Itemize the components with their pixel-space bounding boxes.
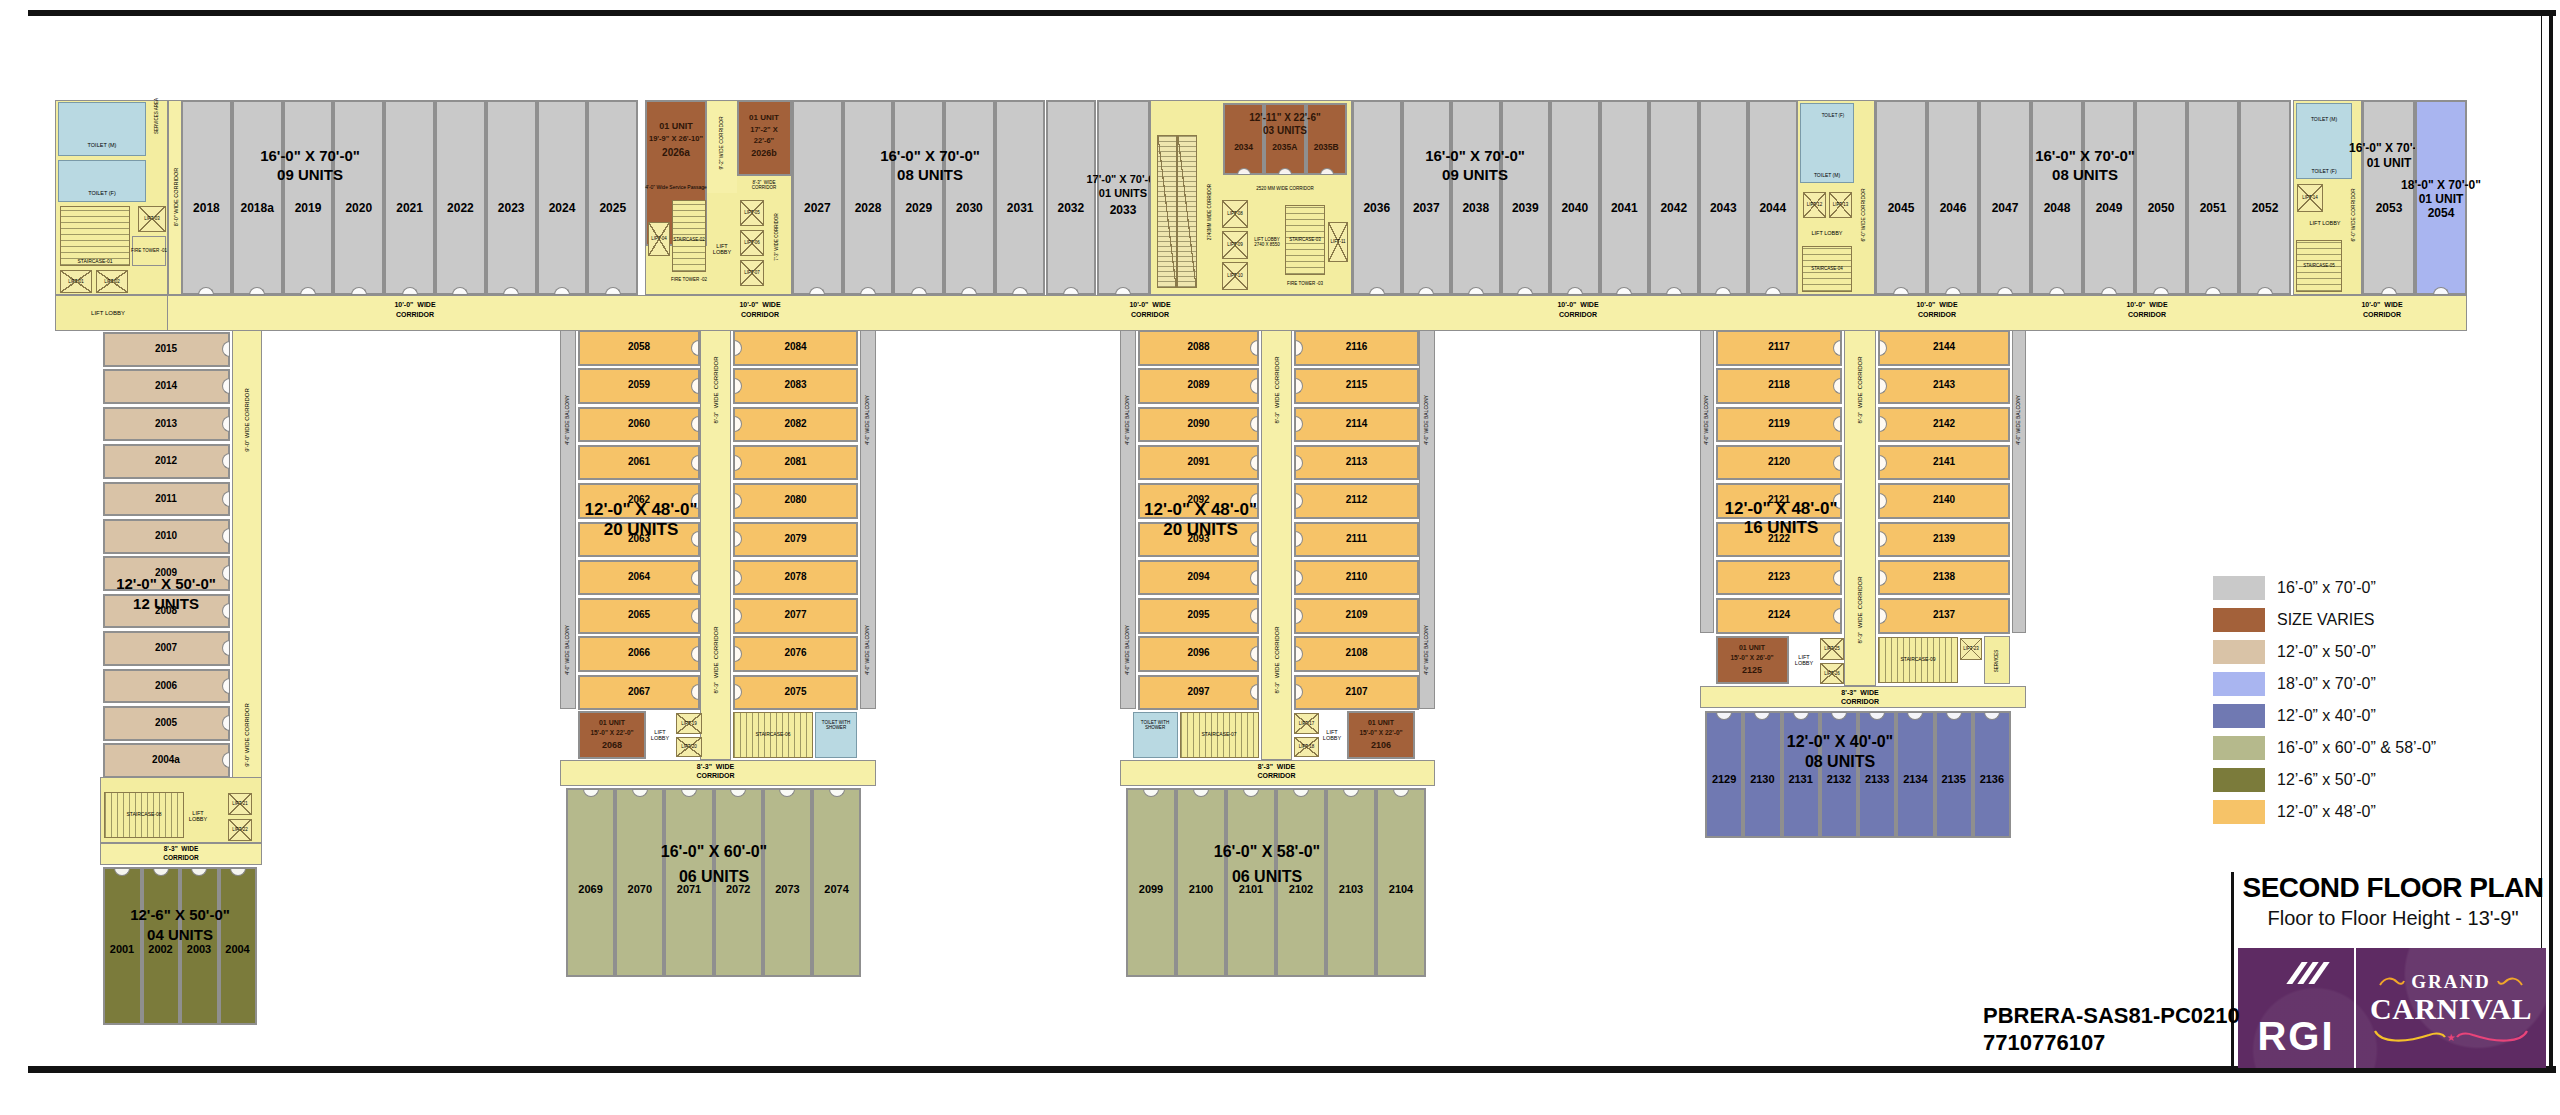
- unit-2139-num: 2139: [1933, 533, 1955, 544]
- lift-04-label: LIFT-04: [651, 237, 667, 242]
- door-2034: [1237, 168, 1251, 175]
- door-2038: [1468, 287, 1484, 295]
- unit-2088-num: 2088: [1187, 342, 1209, 353]
- unit-2039: [1501, 100, 1551, 295]
- wing-a-corridor-h-l1: 8'-3" WIDE: [697, 763, 734, 771]
- unit-2099-num: 2099: [1139, 884, 1163, 896]
- svg-text:★: ★: [2447, 1032, 2456, 1043]
- unit-2106-l2: 15'-0" X 22'-0": [1359, 729, 1402, 736]
- lift-02-label: LIFT-02: [104, 279, 120, 284]
- unit-2031: [995, 100, 1046, 295]
- unit-2117-num: 2117: [1768, 342, 1790, 353]
- unit-2021-num: 2021: [396, 202, 423, 215]
- unit-2113-num: 2113: [1346, 456, 1368, 467]
- unit-2135-num: 2135: [1941, 774, 1965, 786]
- unit-2068-l2: 15'-0" X 22'-0": [590, 729, 633, 736]
- unit-2074-num: 2074: [824, 884, 848, 896]
- wing-a-toilet: [815, 712, 857, 758]
- rgi-logo-text: RGI: [2257, 1016, 2334, 1056]
- legend-label-1: SIZE VARIES: [2277, 611, 2375, 629]
- wing-b-toilet: [1133, 712, 1178, 758]
- legend-swatch-5: [2213, 736, 2265, 760]
- unit-2116-num: 2116: [1346, 342, 1368, 353]
- corridor-main-label-4-1: 10'-0" WIDE: [1916, 301, 1957, 309]
- wing-c-bottom-label2: 08 UNITS: [1805, 753, 1875, 770]
- unit-2123-num: 2123: [1768, 571, 1790, 582]
- unit-2026a-l1: 01 UNIT: [659, 122, 693, 132]
- door-2061: [691, 455, 699, 471]
- unit-2018a-num: 2018a: [241, 202, 274, 215]
- lift-10-label: LIFT-10: [1227, 274, 1243, 279]
- unit-2005-num: 2005: [155, 718, 177, 729]
- legend-row-4: 12’-0” x 40’-0”: [2213, 700, 2436, 732]
- unit-2027-num: 2027: [804, 202, 831, 215]
- wing-a-corridor-label-2: 8'-3" WIDE CORRIDOR: [712, 627, 718, 694]
- unit-2018-num: 2018: [193, 202, 220, 215]
- wing-c-balcony-right: [2012, 330, 2026, 633]
- corridor-main-label-4-2: CORRIDOR: [1918, 311, 1956, 319]
- door-2091: [1250, 455, 1258, 471]
- unit-2026a-l2: 19'-9" X 26'-10": [649, 135, 703, 143]
- wing-b-label1: 12'-0" X 48'-0": [1144, 501, 1257, 519]
- lift-lobby-center-label: LIFT LOBBY 2740 X 8550: [1254, 238, 1280, 248]
- staircase-04-label: STAIRCASE-04: [1811, 267, 1843, 272]
- lift-lobby-b-label: LIFT LOBBY: [2309, 221, 2340, 227]
- rera-line2: 7710776107: [1983, 1029, 2240, 1056]
- unit-2045-num: 2045: [1888, 202, 1915, 215]
- triplet-label1: 12'-11" X 22'-6": [1249, 113, 1321, 124]
- unit-2054-num: 2054: [2428, 207, 2455, 220]
- unit-2029-num: 2029: [905, 202, 932, 215]
- door-2042: [1666, 287, 1682, 295]
- unit-2066-num: 2066: [628, 648, 650, 659]
- unit-2070-num: 2070: [628, 884, 652, 896]
- unit-2059-num: 2059: [628, 380, 650, 391]
- wing-b-label2: 20 UNITS: [1163, 521, 1238, 539]
- toilet-a-f-label: TOILET (F): [1822, 114, 1845, 119]
- unit-2101-num: 2101: [1239, 884, 1263, 896]
- unit-2030: [944, 100, 995, 295]
- unit-2041-num: 2041: [1611, 202, 1638, 215]
- unit-2138-num: 2138: [1933, 571, 1955, 582]
- unit-2110-num: 2110: [1346, 571, 1368, 582]
- wing-c-balcony-left: [1700, 330, 1714, 633]
- lift-07-label: LIFT-07: [744, 271, 760, 276]
- unit-2003-num: 2003: [187, 944, 211, 956]
- lift-lobby-left-label: LIFT LOBBY: [91, 310, 125, 316]
- staircase-09-label: STAIRCASE-09: [1900, 657, 1935, 662]
- unit-2144-num: 2144: [1933, 342, 1955, 353]
- unit-2033-num: 2033: [1110, 204, 1137, 217]
- unit-2032-num: 2032: [1057, 202, 1084, 215]
- lift-23-label: LIFT-23: [1963, 647, 1979, 652]
- corridor-main-label-1-2: CORRIDOR: [741, 311, 779, 319]
- corridor-main-label-0-1: 10'-0" WIDE: [394, 301, 435, 309]
- g3-label1: 16'-0" X 70'-0": [1425, 148, 1525, 164]
- unit-2028-num: 2028: [855, 202, 882, 215]
- unit-2015-num: 2015: [155, 344, 177, 355]
- wing-b-balcony-left-label: 4'-0" WIDE BALCONY: [1125, 395, 1130, 445]
- legend-swatch-0: [2213, 576, 2265, 600]
- unit-2044-num: 2044: [1759, 202, 1786, 215]
- door-2013: [222, 416, 230, 432]
- unit-2026b-l3: 22'-6": [754, 137, 774, 145]
- left-wing-corridor-label-1: 9'-0" WIDE CORRIDOR: [244, 388, 250, 452]
- door-2124: [1833, 608, 1841, 624]
- corridor-main-label-0-2: CORRIDOR: [396, 311, 434, 319]
- wing-b-corridor-h-l1: 8'-3" WIDE: [1258, 763, 1295, 771]
- unit-2043-num: 2043: [1710, 202, 1737, 215]
- corridor-main-label-5-2: CORRIDOR: [2128, 311, 2166, 319]
- wing-a-toilet-label: TOILET WITH SHOWER: [822, 721, 850, 731]
- door-2058: [691, 340, 699, 356]
- unit-2111-num: 2111: [1346, 533, 1367, 544]
- lift-13-label: LIFT-13: [1833, 203, 1849, 208]
- wing-c-label2: 16 UNITS: [1744, 519, 1819, 537]
- unit-2061-num: 2061: [628, 456, 650, 467]
- unit-2025-num: 2025: [599, 202, 626, 215]
- door-2095: [1250, 608, 1258, 624]
- door-2025: [605, 287, 621, 295]
- corridor-v-92-label: 9'-2" WIDE CORRIDOR: [719, 116, 724, 169]
- wing-a-corridor-label-1: 8'-3" WIDE CORRIDOR: [712, 357, 718, 424]
- door-2006: [222, 678, 230, 694]
- unit-2049: [2083, 100, 2135, 295]
- lift-14-label: LIFT-14: [2302, 196, 2318, 201]
- unit-2027: [792, 100, 843, 295]
- unit-2034-num: 2034: [1234, 143, 1253, 152]
- unit-2026b-num: 2026b: [751, 149, 777, 159]
- lift-26-label: LIFT-26: [1824, 671, 1840, 676]
- grand-carnival-logo: GRAND CARNIVAL ★: [2356, 948, 2546, 1068]
- top-rule: [28, 10, 2556, 16]
- door-2008: [222, 603, 230, 619]
- flourish-right-icon: [2497, 976, 2523, 988]
- unit-2035B-num: 2035B: [1314, 143, 1339, 152]
- legend-swatch-7: [2213, 800, 2265, 824]
- unit-2072-num: 2072: [726, 884, 750, 896]
- staircase-01: [60, 206, 130, 266]
- unit-2026a-num: 2026a: [662, 148, 690, 159]
- unit-2047-num: 2047: [1992, 202, 2019, 215]
- wing-a-balcony-left-label2: 4'-0" WIDE BALCONY: [565, 625, 570, 675]
- unit-2013-num: 2013: [155, 418, 177, 429]
- g4-label1: 16'-0" X 70'-0": [2035, 148, 2135, 164]
- unit-2102-num: 2102: [1289, 884, 1313, 896]
- unit-2004-num: 2004: [225, 944, 249, 956]
- unit-2118-num: 2118: [1768, 380, 1790, 391]
- legend-row-1: SIZE VARIES: [2213, 604, 2436, 636]
- unit-2068-num: 2068: [602, 741, 622, 751]
- left-wing-corridor-h-l2: CORRIDOR: [163, 854, 198, 861]
- grand-row: GRAND: [2379, 971, 2523, 993]
- unit-2120-num: 2120: [1768, 456, 1790, 467]
- unit-2106-num: 2106: [1371, 741, 1391, 751]
- unit-2112-num: 2112: [1346, 495, 1368, 506]
- legend-swatch-6: [2213, 768, 2265, 792]
- unit-2132-num: 2132: [1827, 774, 1851, 786]
- unit-2028: [843, 100, 894, 295]
- corridor-v-73-label: 7'-3" WIDE CORRIDOR: [775, 213, 780, 261]
- unit-2080-num: 2080: [784, 495, 806, 506]
- unit-2125-num: 2125: [1742, 666, 1762, 676]
- flourish-bottom-icon: ★: [2371, 1027, 2531, 1045]
- staircase-06-label: STAIRCASE-06: [755, 732, 790, 737]
- lift-05-label: LIFT-05: [744, 211, 760, 216]
- unit-2104-num: 2104: [1389, 884, 1413, 896]
- rera-line1: PBRERA-SAS81-PC0210: [1983, 1002, 2240, 1029]
- legend-row-5: 16’-0” x 60’-0” & 58’-0”: [2213, 732, 2436, 764]
- unit-2012-num: 2012: [155, 456, 177, 467]
- unit-2053-num: 2053: [2376, 202, 2403, 215]
- unit-2042: [1649, 100, 1699, 295]
- unit-2019-num: 2019: [295, 202, 322, 215]
- unit-2053: [2362, 100, 2415, 295]
- wing-b-corridor-label-2: 8'-3" WIDE CORRIDOR: [1273, 627, 1279, 694]
- unit-2097-num: 2097: [1187, 686, 1209, 697]
- door-2123: [1833, 570, 1841, 586]
- fire-tower-01-label: FIRE TOWER -01: [131, 249, 167, 254]
- unit-2076-num: 2076: [784, 648, 806, 659]
- unit-2030-num: 2030: [956, 202, 983, 215]
- left-wing-corridor-label-2: 9'-0" WIDE CORRIDOR: [244, 703, 250, 767]
- unit-2143-num: 2143: [1933, 380, 1955, 391]
- corridor-v-60b-label: 6'-0" WIDE CORRIDOR: [2351, 188, 2356, 241]
- lift-01-label: LIFT-01: [68, 279, 84, 284]
- corridor-2520-label: 2520 MM WIDE CORRIDOR: [1256, 187, 1314, 192]
- unit-2025: [587, 100, 638, 295]
- wing-c-balcony-right-label: 4'-0" WIDE BALCONY: [2016, 395, 2021, 445]
- wing-a-bottom-label2: 06 UNITS: [679, 868, 749, 885]
- legend-row-0: 16’-0” x 70’-0”: [2213, 572, 2436, 604]
- floor-plan-sheet: 16’-0” x 70’-0”SIZE VARIES12’-0” x 50’-0…: [0, 0, 2560, 1115]
- staircase-07-label: STAIRCASE-07: [1201, 732, 1236, 737]
- unit-2065-num: 2065: [628, 610, 650, 621]
- unit-2039-num: 2039: [1512, 202, 1539, 215]
- unit-2073-num: 2073: [775, 884, 799, 896]
- lift-17-label: LIFT-17: [1299, 721, 1315, 726]
- lift-12-label: LIFT-12: [1807, 203, 1823, 208]
- g3-label2: 09 UNITS: [1442, 167, 1508, 183]
- corridor-main-label-2-2: CORRIDOR: [1131, 311, 1169, 319]
- page-subtitle: Floor to Floor Height - 13'-9": [2237, 907, 2549, 930]
- unit-2031-num: 2031: [1007, 202, 1034, 215]
- wing-c-corridor-label-1: 8'-3" WIDE CORRIDOR: [1857, 357, 1863, 424]
- door-2032: [1063, 287, 1079, 295]
- left-wing-lobby-label: LIFT LOBBY: [189, 811, 207, 823]
- unit-2041: [1600, 100, 1650, 295]
- unit-2040-num: 2040: [1561, 202, 1588, 215]
- unit-2068-l1: 01 UNIT: [599, 719, 625, 727]
- unit-2141-num: 2141: [1933, 456, 1955, 467]
- legend-row-3: 18’-0” x 70’-0”: [2213, 668, 2436, 700]
- unit-2083-num: 2083: [784, 380, 806, 391]
- unit-2078-num: 2078: [784, 571, 806, 582]
- unit-2050: [2135, 100, 2187, 295]
- corridor-main-label-5-1: 10'-0" WIDE: [2126, 301, 2167, 309]
- escalator-1: [1157, 135, 1177, 288]
- unit-2134-num: 2134: [1903, 774, 1927, 786]
- wing-a-lobby-label: LIFT LOBBY: [651, 730, 669, 742]
- legend-label-2: 12’-0” x 50’-0”: [2277, 643, 2376, 661]
- unit-2024: [537, 100, 588, 295]
- door-2117: [1833, 340, 1841, 356]
- lift-22-label: LIFT-22: [232, 828, 248, 833]
- fire-tower-03-label: FIRE TOWER -03: [1287, 282, 1323, 287]
- unit-2054-l2: 01 UNIT: [2419, 193, 2464, 206]
- unit-2002-num: 2002: [148, 944, 172, 956]
- unit-2048: [2031, 100, 2083, 295]
- unit-2058-num: 2058: [628, 342, 650, 353]
- corridor-main-label-3-2: CORRIDOR: [1559, 311, 1597, 319]
- toilet-a-m-label: TOILET (M): [1814, 173, 1840, 178]
- service-passage-label: 4'-0" Wide Service Passage: [645, 185, 707, 190]
- corridor-v-left-label: 8'-0" WIDE CORRIDOR: [174, 168, 180, 226]
- page-title: SECOND FLOOR PLAN: [2237, 872, 2549, 904]
- lift-20-label: LIFT-20: [681, 745, 697, 750]
- unit-2045: [1875, 100, 1927, 295]
- toilet-m-left-label: TOILET (M): [88, 143, 117, 149]
- wing-c-corridor-h-l1: 8'-3" WIDE: [1841, 689, 1878, 697]
- unit-2100-num: 2100: [1189, 884, 1213, 896]
- fire-tower-02-label: FIRE TOWER -02: [671, 278, 707, 283]
- legend-label-7: 12’-0” x 48’-0”: [2277, 803, 2376, 821]
- unit-2049-num: 2049: [2096, 202, 2123, 215]
- unit-2018: [181, 100, 232, 295]
- unit-2048-num: 2048: [2044, 202, 2071, 215]
- unit-2060-num: 2060: [628, 418, 650, 429]
- lift-18-label: LIFT-18: [1299, 745, 1315, 750]
- unit-2026b-l1: 01 UNIT: [749, 114, 779, 123]
- wing-b-balcony-right-label2: 4'-0" WIDE BALCONY: [1424, 625, 1429, 675]
- wing-a-label1: 12'-0" X 48'-0": [584, 501, 697, 519]
- door-2040: [1567, 287, 1583, 295]
- wing-a-balcony-right-label2: 4'-0" WIDE BALCONY: [865, 625, 870, 675]
- escalator-2: [1177, 135, 1197, 288]
- unit-2079-num: 2079: [784, 533, 806, 544]
- wing-c-corridor-label-2: 8'-3" WIDE CORRIDOR: [1857, 577, 1863, 644]
- door-2094: [1250, 570, 1258, 586]
- rera-number: PBRERA-SAS81-PC0210 7710776107: [1983, 1002, 2240, 1056]
- corridor-v-60a-label: 6'-0" WIDE CORRIDOR: [1861, 188, 1866, 241]
- door-2065: [691, 608, 699, 624]
- unit-2046: [1927, 100, 1979, 295]
- legend-swatch-4: [2213, 704, 2265, 728]
- unit-2029: [893, 100, 944, 295]
- logo: RGI GRAND CARNIVAL ★: [2238, 948, 2546, 1068]
- lift-03-label: LIFT-03: [144, 217, 160, 222]
- unit-2011-num: 2011: [155, 493, 177, 504]
- legend: 16’-0” x 70’-0”SIZE VARIES12’-0” x 50’-0…: [2213, 572, 2436, 828]
- unit-2064-num: 2064: [628, 571, 650, 582]
- unit-2054-l1: 18'-0" X 70'-0": [2401, 179, 2481, 192]
- unit-2084-num: 2084: [784, 342, 806, 353]
- corridor-2740-label: 2740MM WIDE CORRIDOR: [1208, 184, 1213, 240]
- unit-2089-num: 2089: [1187, 380, 1209, 391]
- door-2120: [1833, 455, 1841, 471]
- g2-label1: 16'-0" X 70'-0": [880, 148, 980, 164]
- unit-2103-num: 2103: [1339, 884, 1363, 896]
- wing-b-toilet-label: TOILET WITH SHOWER: [1141, 721, 1169, 731]
- lift-09-label: LIFT-09: [1227, 243, 1243, 248]
- legend-label-6: 12’-6” x 50’-0”: [2277, 771, 2376, 789]
- unit-2130-num: 2130: [1750, 774, 1774, 786]
- unit-2071-num: 2071: [677, 884, 701, 896]
- unit-2014-num: 2014: [155, 381, 177, 392]
- unit-2136-num: 2136: [1980, 774, 2004, 786]
- door-2064: [691, 570, 699, 586]
- bottom-rule: [28, 1066, 2556, 1073]
- staircase-01-label: STAIRCASE-01: [77, 259, 112, 264]
- unit-2040: [1550, 100, 1600, 295]
- unit-2037: [1402, 100, 1452, 295]
- unit-2018a: [232, 100, 283, 295]
- staircase-05-label: STAIRCASE-05: [2303, 264, 2335, 269]
- wing-b-bottom-label1: 16'-0" X 58'-0": [1214, 843, 1320, 860]
- unit-2091-num: 2091: [1187, 456, 1209, 467]
- door-2011: [222, 491, 230, 507]
- unit-2046-num: 2046: [1940, 202, 1967, 215]
- unit-2077-num: 2077: [784, 610, 806, 621]
- left-wing-bottom-label2: 04 UNITS: [147, 927, 213, 943]
- unit-2023-num: 2023: [498, 202, 525, 215]
- carnival-text: CARNIVAL: [2370, 993, 2532, 1025]
- unit-2069-num: 2069: [578, 884, 602, 896]
- unit-2133-num: 2133: [1865, 774, 1889, 786]
- unit-2140-num: 2140: [1933, 495, 1955, 506]
- staircase-03-label: STAIRCASE-03: [1289, 238, 1321, 243]
- lift-lobby-a-label: LIFT LOBBY: [1811, 231, 1842, 237]
- unit-2096-num: 2096: [1187, 648, 1209, 659]
- g1-label2: 09 UNITS: [277, 167, 343, 183]
- unit-2033-l1: 17'-0" X 70'-0": [1086, 174, 1159, 186]
- corridor-main-label-1-1: 10'-0" WIDE: [739, 301, 780, 309]
- unit-2007-num: 2007: [155, 643, 177, 654]
- unit-2108-num: 2108: [1345, 648, 1367, 659]
- unit-2010-num: 2010: [155, 531, 177, 542]
- corridor-83-mid-label: 8'-3" WIDE CORRIDOR: [752, 181, 777, 191]
- unit-2094-num: 2094: [1187, 571, 1209, 582]
- toilet-b-f-label: TOILET (F): [2311, 169, 2336, 174]
- lift-lobby-mid-label: LIFT LOBBY: [713, 244, 731, 256]
- lift-25-label: LIFT-25: [1824, 647, 1840, 652]
- toilet-b-m-label: TOILET (M): [2311, 117, 2337, 122]
- unit-2051-num: 2051: [2200, 202, 2227, 215]
- wing-b-bottom-label2: 06 UNITS: [1232, 868, 1302, 885]
- unit-2137-num: 2137: [1933, 610, 1955, 621]
- legend-swatch-2: [2213, 640, 2265, 664]
- wing-a-bottom-label1: 16'-0" X 60'-0": [661, 843, 767, 860]
- legend-label-0: 16’-0” x 70’-0”: [2277, 579, 2376, 597]
- corridor-main-label-3-1: 10'-0" WIDE: [1557, 301, 1598, 309]
- door-2044: [1765, 287, 1781, 295]
- door-2088: [1250, 340, 1258, 356]
- unit-2125-l2: 15'-0" X 26'-0": [1730, 654, 1773, 661]
- unit-2115-num: 2115: [1346, 380, 1368, 391]
- unit-2047: [1979, 100, 2031, 295]
- unit-2022: [435, 100, 486, 295]
- unit-2053-l2: 01 UNIT: [2367, 157, 2412, 170]
- door-2021: [402, 287, 418, 295]
- lift-08-label: LIFT-08: [1227, 212, 1243, 217]
- unit-2075-num: 2075: [784, 686, 806, 697]
- unit-2043: [1699, 100, 1749, 295]
- legend-label-3: 18’-0” x 70’-0”: [2277, 675, 2376, 693]
- unit-2024-num: 2024: [549, 202, 576, 215]
- wing-c-lobby-label: LIFT LOBBY: [1795, 655, 1813, 667]
- legend-swatch-1: [2213, 608, 2265, 632]
- unit-2129-num: 2129: [1712, 774, 1736, 786]
